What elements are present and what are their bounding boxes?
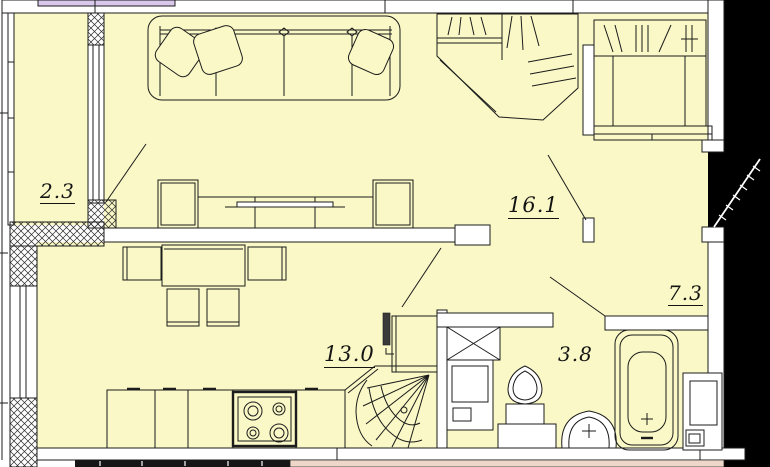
kitchen-window — [10, 286, 37, 398]
room-label-living-room: 16.1 — [508, 195, 559, 219]
duct-box — [498, 424, 556, 448]
neighbor-top-strip — [38, 0, 175, 6]
tv — [237, 202, 333, 207]
utility-shaft — [683, 373, 722, 450]
room-label-bathroom: 3.8 — [558, 344, 593, 364]
room-label-hallway: 7.3 — [668, 283, 703, 306]
room-label-balcony: 2.3 — [40, 181, 75, 204]
balcony-glazing — [8, 13, 14, 225]
vent-shaft — [447, 327, 500, 360]
room-label-kitchen: 13.0 — [324, 344, 375, 368]
balcony-window — [88, 45, 104, 203]
floor-plan: 2.3 16.1 7.3 13.0 3.8 — [0, 0, 770, 467]
kitchen-floor — [37, 242, 437, 448]
floor-plan-canvas — [0, 0, 770, 467]
toilet-tank — [506, 404, 544, 424]
neighbor-bottom-strips — [75, 460, 724, 467]
washing-machine — [447, 360, 493, 430]
